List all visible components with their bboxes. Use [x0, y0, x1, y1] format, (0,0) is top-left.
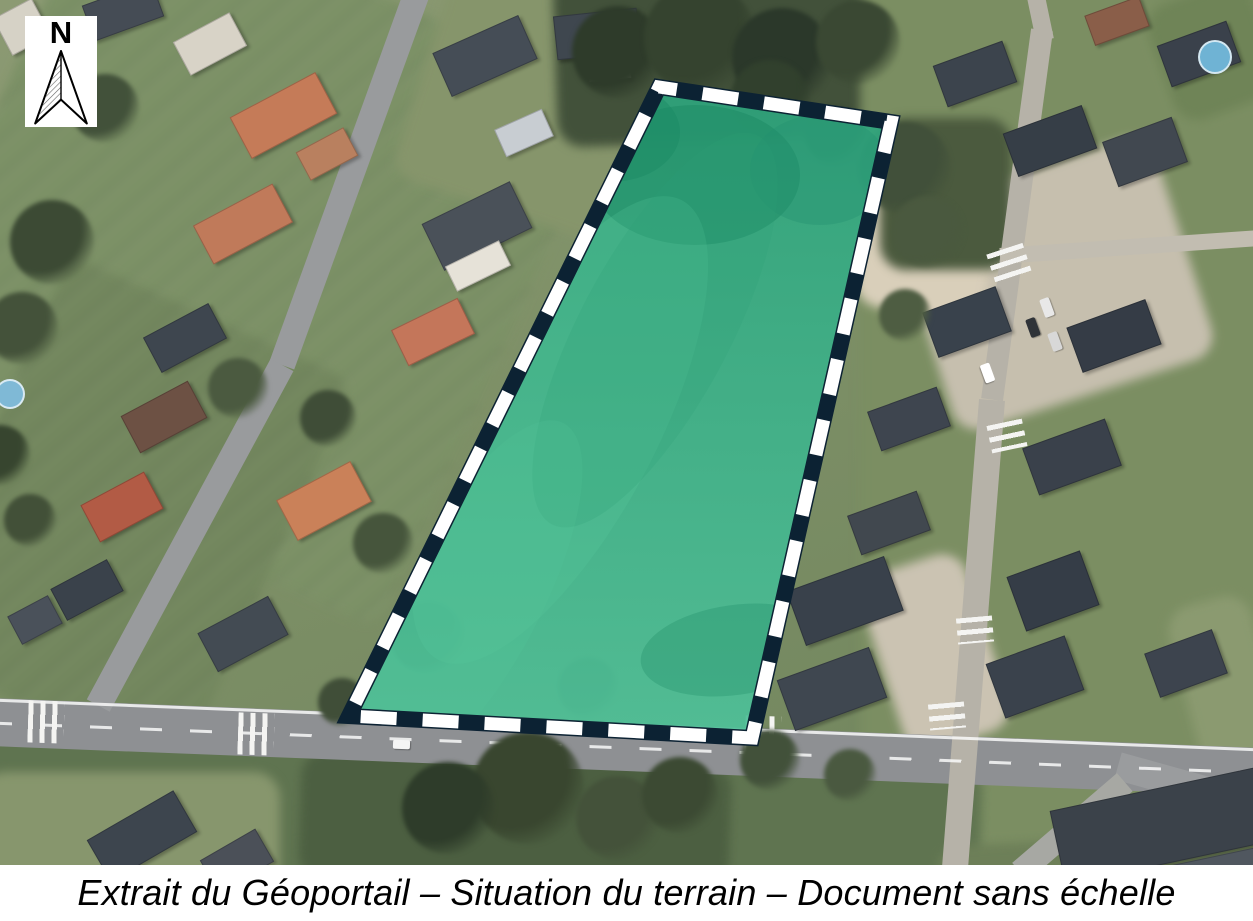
crosswalk	[928, 701, 966, 730]
tree	[879, 289, 931, 341]
crosswalk	[27, 700, 64, 743]
north-label: N	[50, 17, 72, 50]
tree	[318, 678, 366, 726]
tree	[402, 762, 494, 854]
tree	[892, 196, 964, 268]
tree	[208, 358, 268, 418]
tree	[642, 757, 718, 833]
crosswalk	[237, 712, 274, 755]
crosswalk	[956, 615, 994, 644]
tree	[392, 602, 464, 674]
tree	[300, 390, 356, 446]
tree	[558, 658, 618, 718]
tree	[353, 513, 413, 573]
tree	[4, 494, 56, 546]
tree	[740, 730, 800, 790]
tree	[824, 749, 876, 801]
caption-band: Extrait du Géoportail – Situation du ter…	[0, 865, 1253, 921]
north-arrow-icon	[30, 50, 92, 127]
tree	[730, 60, 810, 140]
swimming-pool	[1198, 40, 1232, 74]
caption-text: Extrait du Géoportail – Situation du ter…	[77, 872, 1175, 914]
north-arrow: N	[25, 16, 97, 127]
car	[393, 740, 410, 750]
tree	[10, 200, 94, 284]
tree	[816, 0, 900, 84]
tree	[805, 105, 865, 165]
aerial-photo	[0, 0, 1253, 865]
